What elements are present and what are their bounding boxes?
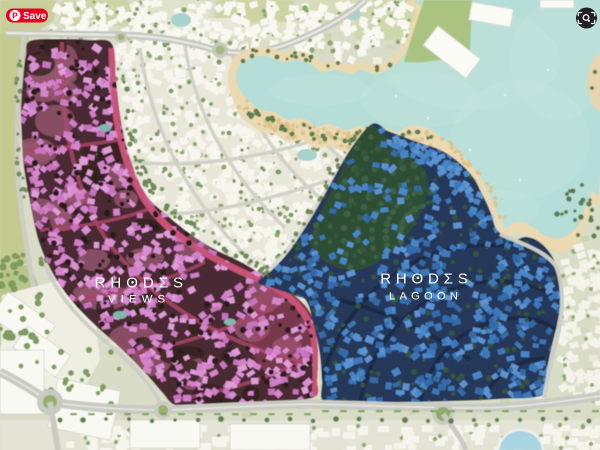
svg-text:LAGOON: LAGOON	[389, 290, 462, 302]
svg-text:Save: Save	[23, 11, 47, 22]
svg-text:RHODΣS: RHODΣS	[380, 270, 472, 287]
svg-text:P: P	[12, 11, 18, 21]
svg-text:VIEWS: VIEWS	[108, 294, 170, 306]
svg-text:RHODΣS: RHODΣS	[95, 275, 188, 292]
